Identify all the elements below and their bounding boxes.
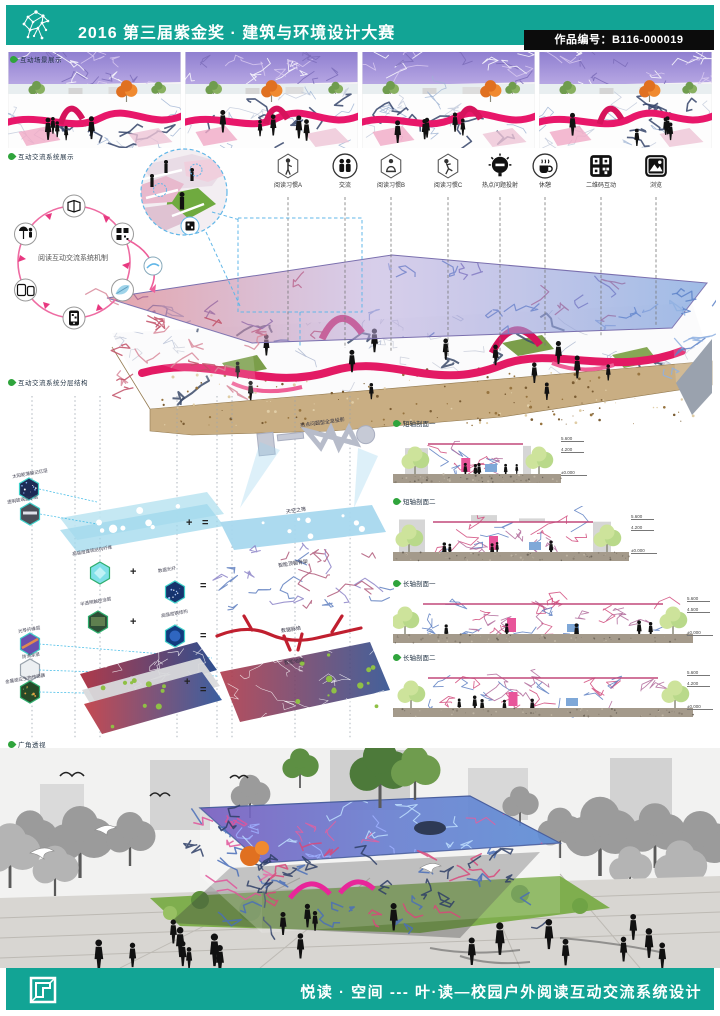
footer-band: 悦读 · 空间 --- 叶·读—校园户外阅读互动交流系统设计 — [6, 968, 714, 1010]
scene-render-strip — [8, 52, 712, 148]
elevation-mark: ±0.000 — [561, 470, 587, 476]
exploded-section-label: 互动交流系统分层结构 — [8, 377, 88, 387]
exploded-layer-diagram — [2, 390, 394, 742]
icon-communication: 交流 — [319, 153, 371, 189]
plus-sign: + — [186, 517, 192, 529]
node-leaf-icon — [112, 279, 134, 301]
section-label: 短轴剖面一 — [393, 418, 719, 428]
elevation-mark: 4.200 — [561, 447, 584, 453]
leaf-icon — [7, 377, 17, 387]
project-title: 悦读 · 空间 --- 叶·读—校园户外阅读互动交流系统设计 — [300, 981, 702, 1002]
equals-sign: = — [202, 517, 208, 529]
elevation-mark: 4.200 — [631, 525, 654, 531]
elevation-mark: ±0.000 — [631, 548, 657, 554]
seated-reader-icon — [378, 153, 404, 179]
perspective-section-label: 广角透视 — [8, 739, 46, 749]
elevation-mark: 5.600 — [631, 514, 654, 520]
elevation-mark: ±0.000 — [687, 704, 713, 710]
section-label: 长轴剖面二 — [393, 652, 719, 662]
elevation-mark: 5.600 — [687, 596, 710, 602]
projector-lamp-icon — [487, 153, 513, 179]
scene-render — [8, 52, 181, 148]
section-drawing-block: 长轴剖面二5.6004.200±0.000 — [393, 652, 719, 728]
equals-sign: = — [200, 580, 206, 592]
elevation-mark: ±0.000 — [687, 630, 713, 636]
image-icon — [643, 153, 669, 179]
elevation-mark: 5.600 — [561, 436, 584, 442]
leaning-reader-icon — [435, 153, 461, 179]
mechanism-center-text: 阅读互动交流系统机制 — [27, 253, 119, 263]
pinwheel-logo-icon — [28, 975, 58, 1005]
leaf-icon — [7, 151, 17, 161]
scene-render — [362, 52, 535, 148]
scene-render — [185, 52, 358, 148]
two-people-icon — [332, 153, 358, 179]
section-label: 短轴剖面二 — [393, 496, 719, 506]
section-drawing-block: 短轴剖面一5.6004.200±0.000 — [393, 418, 719, 494]
person-hexagon-icon — [275, 153, 301, 179]
equals-sign: = — [200, 684, 206, 696]
icon-reading-habit-a: 阅读习惯A — [262, 153, 314, 189]
elevation-mark: 5.600 — [687, 670, 710, 676]
node-book-icon — [63, 195, 85, 217]
equals-sign: = — [200, 630, 206, 642]
section-drawing-block: 短轴剖面二5.6004.200±0.000 — [393, 496, 719, 572]
scene-section-label: 互动场景展示 — [10, 54, 62, 64]
leaf-icon — [7, 739, 17, 749]
section-drawings-column: 短轴剖面一5.6004.200±0.000短轴剖面二5.6004.200±0.0… — [393, 414, 719, 734]
network-logo-icon — [18, 8, 54, 44]
entry-number-badge: 作品编号：B116-000019 — [524, 30, 714, 50]
elevation-mark: 4.500 — [687, 607, 710, 613]
icon-browse: 浏览 — [630, 153, 682, 189]
plus-sign: + — [130, 616, 136, 628]
icon-rest: 休憩 — [519, 153, 571, 189]
plus-sign: + — [184, 676, 190, 688]
poster-title: 2016 第三届紫金奖 · 建筑与环境设计大赛 — [78, 19, 395, 43]
icon-qrcode-interaction: 二维码互动 — [575, 153, 627, 189]
node-people-icon — [15, 223, 37, 245]
coffee-cup-icon — [532, 153, 558, 179]
elevation-mark: 4.200 — [687, 681, 710, 687]
leaf-icon — [9, 54, 19, 64]
plus-sign: + — [130, 566, 136, 578]
node-qr-icon — [112, 223, 134, 245]
section-label: 长轴剖面一 — [393, 578, 719, 588]
scene-render — [539, 52, 712, 148]
node-devices-icon — [15, 279, 37, 301]
icon-reading-habit-c: 阅读习惯C — [422, 153, 474, 189]
competition-poster: 2016 第三届紫金奖 · 建筑与环境设计大赛 作品编号：B116-000019… — [0, 0, 720, 1016]
icon-reading-habit-b: 阅读习惯B — [365, 153, 417, 189]
wide-angle-perspective-render — [0, 748, 720, 968]
qr-code-icon — [588, 153, 614, 179]
section-drawing-block: 长轴剖面一5.6004.500±0.000 — [393, 578, 719, 654]
mechanism-section-label: 互动交流系统展示 — [8, 151, 74, 161]
detail-callout — [132, 146, 236, 242]
node-phone-qr-icon — [63, 307, 85, 329]
